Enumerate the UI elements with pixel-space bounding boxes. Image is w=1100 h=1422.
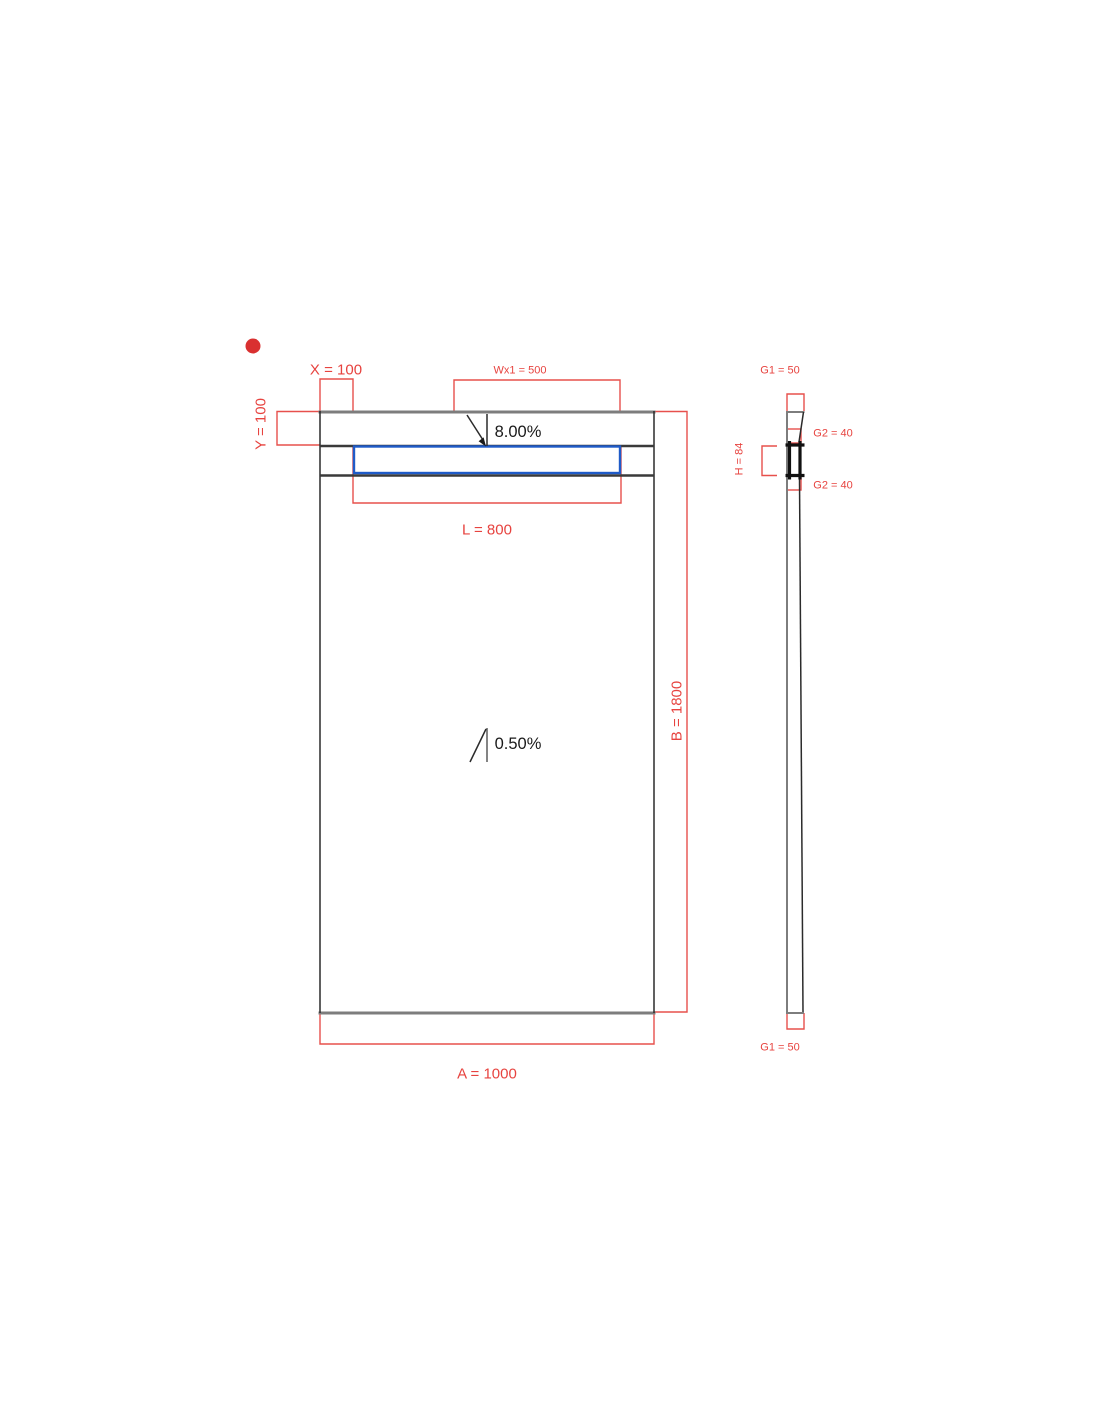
dim-label-a: A = 1000 [457,1067,517,1082]
slope-marker-top [467,414,487,447]
side-drain-section [786,441,805,480]
dim-label-g2-upper: G2 = 40 [813,429,852,440]
plan-dimension-lines [277,379,687,1044]
drain-channel-blue-outline [354,447,620,474]
slope-marker-main [470,728,487,762]
slope-label-top: 8.00% [495,424,542,441]
drawing-linework [0,0,1100,1422]
drawing-canvas: X = 100 Wx1 = 500 Y = 100 8.00% L = 800 … [0,0,1100,1422]
side-profile-outline [786,411,805,1014]
dim-label-h: H = 84 [735,443,746,476]
dim-label-g1-bottom: G1 = 50 [760,1043,799,1054]
dim-label-b: B = 1800 [670,681,685,741]
plan-tray-outline [319,411,656,1013]
plan-drain-channel [320,446,654,476]
dim-label-x: X = 100 [310,363,362,378]
dim-label-g1-top: G1 = 50 [760,366,799,377]
side-dimension-lines [762,394,804,1029]
dim-label-l: L = 800 [462,523,512,538]
dim-label-g2-lower: G2 = 40 [813,481,852,492]
dim-label-wx1: Wx1 = 500 [494,366,547,377]
slope-label-main: 0.50% [495,736,542,753]
red-marker-dot [246,339,261,354]
dim-label-y: Y = 100 [254,398,269,450]
